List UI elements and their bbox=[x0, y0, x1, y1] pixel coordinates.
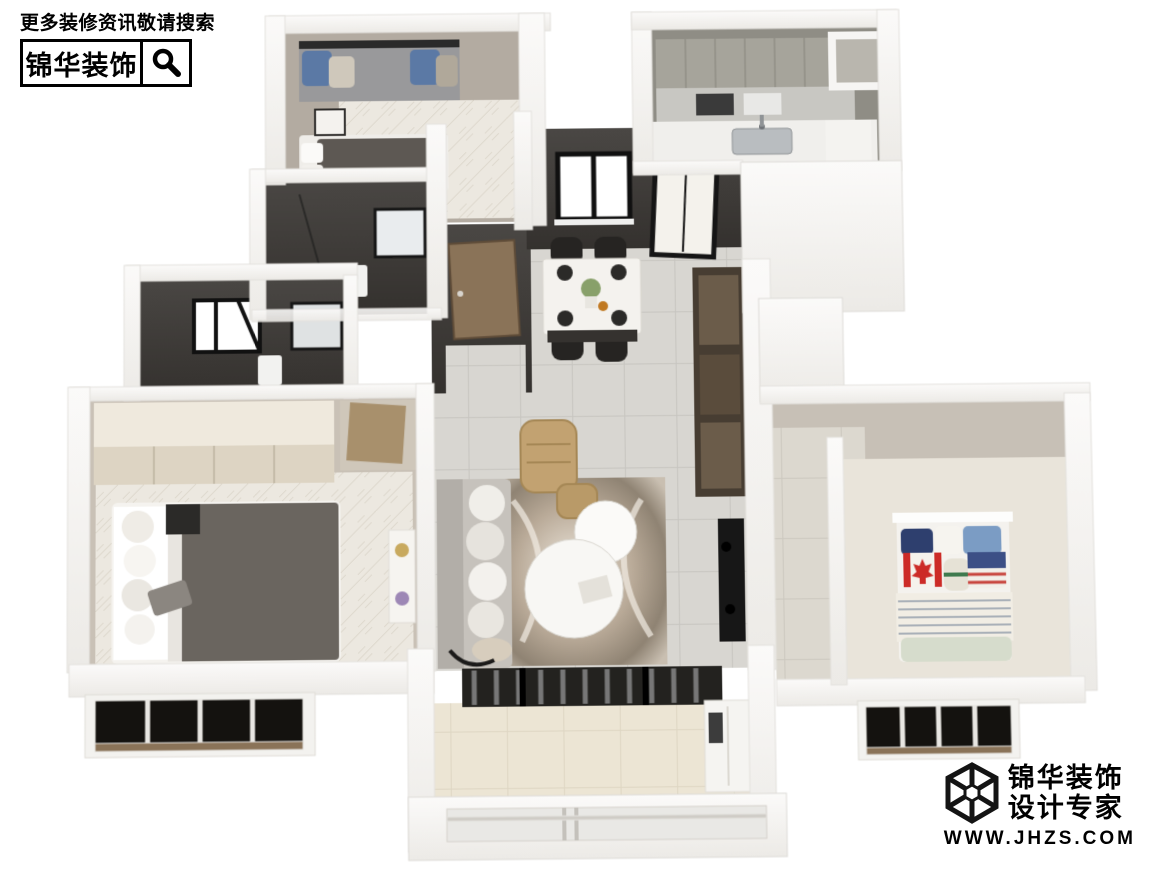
balcony-exterior-window bbox=[447, 806, 767, 842]
headboard-shelf bbox=[892, 512, 1013, 523]
usa-flag-pillow bbox=[967, 552, 1006, 589]
room-bathroom-master bbox=[136, 275, 350, 397]
brand-watermark: 锦华装饰 设计专家 WWW.JHZS.COM bbox=[944, 762, 1136, 850]
balcony-cabinet bbox=[704, 700, 752, 792]
kids-bay-window bbox=[858, 699, 1021, 760]
wardrobe-master bbox=[94, 401, 335, 486]
dining-window bbox=[554, 154, 634, 226]
magnifier-icon bbox=[143, 42, 189, 84]
search-watermark: 更多装修资讯敬请搜索 锦华装饰 bbox=[20, 12, 215, 87]
plant-shelf bbox=[389, 530, 416, 623]
master-bay-window bbox=[85, 692, 315, 757]
brand-line1: 锦华装饰 bbox=[1008, 763, 1124, 793]
room-bedroom-kids bbox=[772, 397, 1083, 688]
sofa bbox=[437, 479, 513, 669]
room-balcony bbox=[428, 666, 754, 804]
brand-line2: 设计专家 bbox=[1008, 793, 1124, 823]
bay-window-seat bbox=[299, 39, 460, 101]
brand-url: WWW.JHZS.COM bbox=[944, 828, 1136, 850]
kitchen-tall-unit bbox=[825, 120, 871, 164]
room-kitchen bbox=[648, 27, 898, 173]
balcony-sliding-doors bbox=[462, 666, 722, 707]
striped-duvet bbox=[896, 592, 1014, 662]
floorplan-render-page: 更多装修资讯敬请搜索 锦华装饰 bbox=[0, 0, 1158, 868]
kitchen-glass-door bbox=[651, 161, 719, 258]
brand-name: 锦华装饰 bbox=[23, 42, 140, 84]
bed-master bbox=[111, 501, 341, 665]
floorplan-3d-view bbox=[0, 0, 1158, 879]
canada-flag-pillow bbox=[903, 553, 942, 588]
floorplan-svg bbox=[0, 0, 1158, 879]
nightstand-north bbox=[315, 109, 345, 135]
cube-wireframe-logo bbox=[944, 762, 1000, 824]
master-door bbox=[340, 400, 418, 471]
entry-door bbox=[448, 240, 519, 339]
mirror-guest bbox=[375, 209, 425, 257]
bed-kids bbox=[892, 512, 1016, 662]
room-bedroom-master bbox=[89, 394, 421, 669]
search-box: 锦华装饰 bbox=[20, 39, 192, 87]
nightstand-master bbox=[166, 504, 200, 534]
toilet-master bbox=[258, 355, 282, 385]
living-tv bbox=[718, 518, 746, 641]
search-tagline: 更多装修资讯敬请搜索 bbox=[20, 12, 215, 36]
